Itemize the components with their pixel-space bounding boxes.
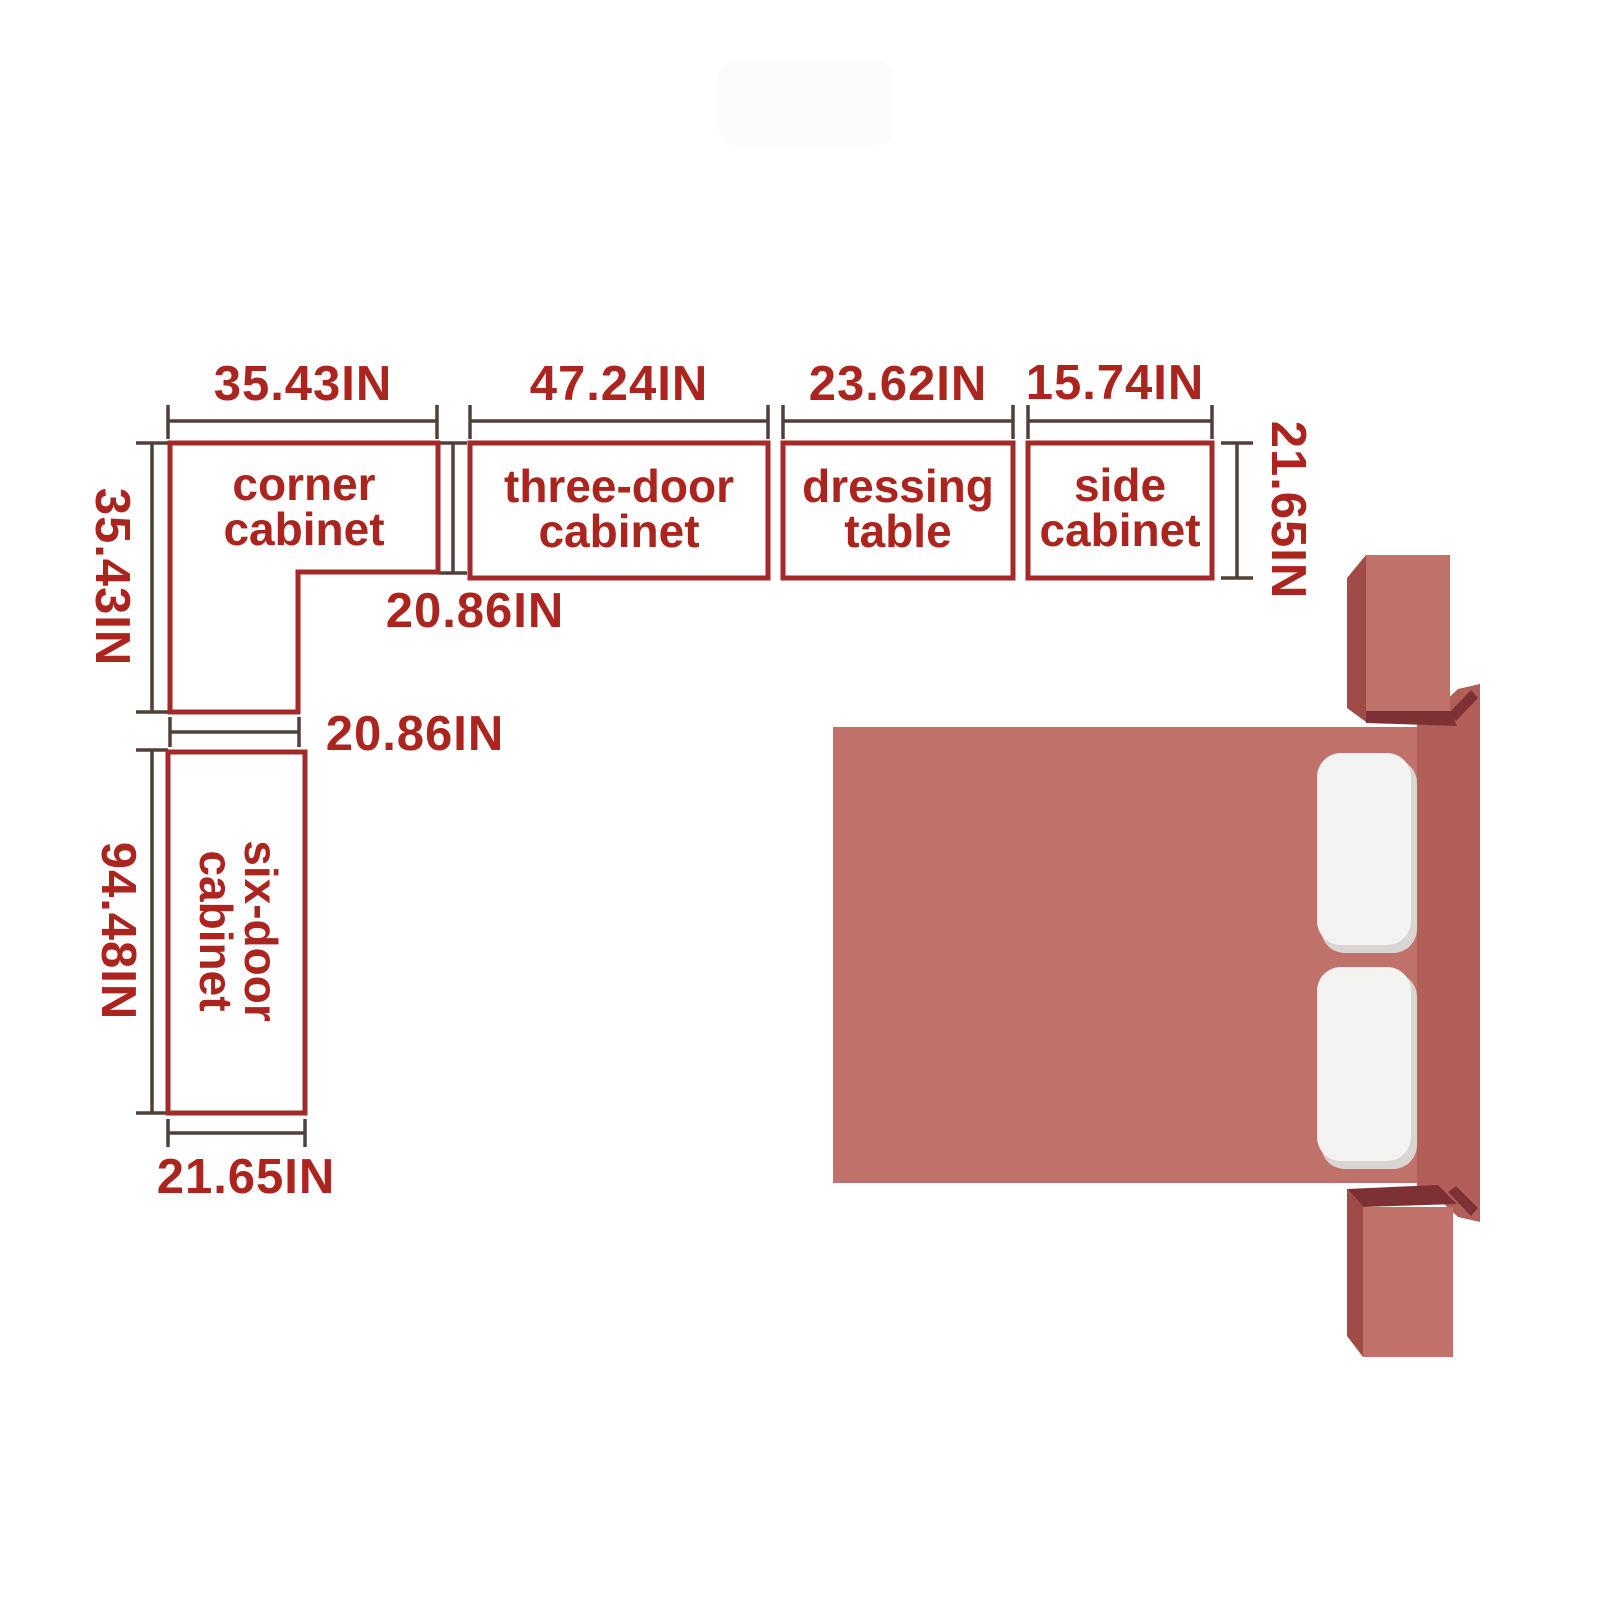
six-door-cabinet-label: six-door cabinet	[193, 840, 283, 1021]
dressing-table-label-line1: dressing	[802, 464, 994, 509]
nightstand-top	[1347, 555, 1457, 726]
dressing-table-label: dressing table	[802, 464, 994, 554]
corner-cabinet-label: corner cabinet	[223, 462, 384, 552]
three-door-cabinet-label-line1: three-door	[504, 464, 734, 509]
dim-corner-left-height: 35.43IN	[88, 488, 136, 667]
pillow-bottom	[1317, 967, 1411, 1161]
three-door-cabinet-label-line2: cabinet	[504, 509, 734, 554]
nightstand-top-side-face	[1347, 555, 1366, 722]
dim-corner-top-width: 35.43IN	[214, 360, 393, 408]
six-door-cabinet-label-line1: six-door	[238, 840, 283, 1021]
dim-three-door-width: 47.24IN	[530, 360, 709, 408]
pillow-top	[1317, 753, 1411, 945]
nightstand-bottom-front-face	[1363, 1207, 1453, 1357]
dim-side-width: 15.74IN	[1026, 359, 1205, 407]
nightstand-bottom-shadow	[1347, 1185, 1457, 1207]
bed-headboard	[1417, 684, 1480, 1222]
bed	[833, 555, 1480, 1357]
side-cabinet-label: side cabinet	[1039, 463, 1200, 553]
corner-cabinet-label-line1: corner	[223, 462, 384, 507]
corner-cabinet-label-line2: cabinet	[223, 507, 384, 552]
dim-six-door-height: 94.48IN	[94, 842, 142, 1021]
dim-six-door-width: 21.65IN	[157, 1153, 336, 1201]
three-door-cabinet-label: three-door cabinet	[504, 464, 734, 554]
dim-corner-inner-depth: 20.86IN	[386, 587, 565, 635]
six-door-cabinet-label-line2: cabinet	[193, 840, 238, 1021]
side-cabinet-label-line2: cabinet	[1039, 508, 1200, 553]
watermark-ghost	[718, 60, 894, 146]
floor-plan-drawing	[0, 0, 1600, 1600]
dim-row-depth: 21.65IN	[1264, 421, 1312, 600]
nightstand-bottom	[1347, 1185, 1457, 1357]
nightstand-bottom-side-face	[1347, 1189, 1363, 1357]
side-cabinet-label-line1: side	[1039, 463, 1200, 508]
dim-dressing-width: 23.62IN	[809, 360, 988, 408]
nightstand-top-front-face	[1366, 555, 1450, 713]
floor-plan-canvas: 35.43IN 47.24IN 23.62IN 15.74IN 35.43IN …	[0, 0, 1600, 1600]
dim-corner-bottom-width: 20.86IN	[326, 710, 505, 758]
nightstand-top-shadow	[1366, 711, 1457, 726]
dressing-table-label-line2: table	[802, 509, 994, 554]
